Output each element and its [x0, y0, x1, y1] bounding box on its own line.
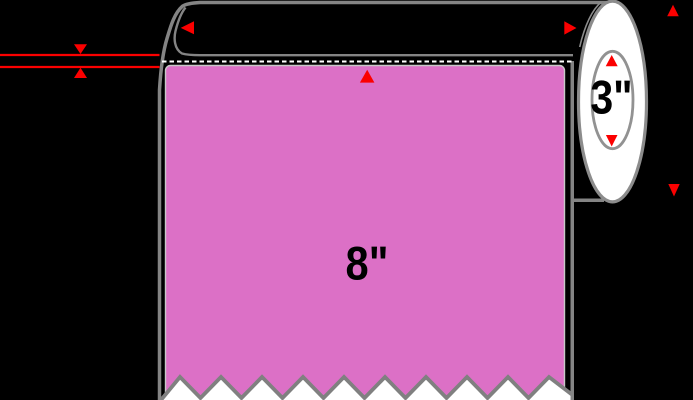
svg-text:8": 8" — [346, 237, 389, 290]
svg-text:3": 3" — [590, 71, 632, 124]
